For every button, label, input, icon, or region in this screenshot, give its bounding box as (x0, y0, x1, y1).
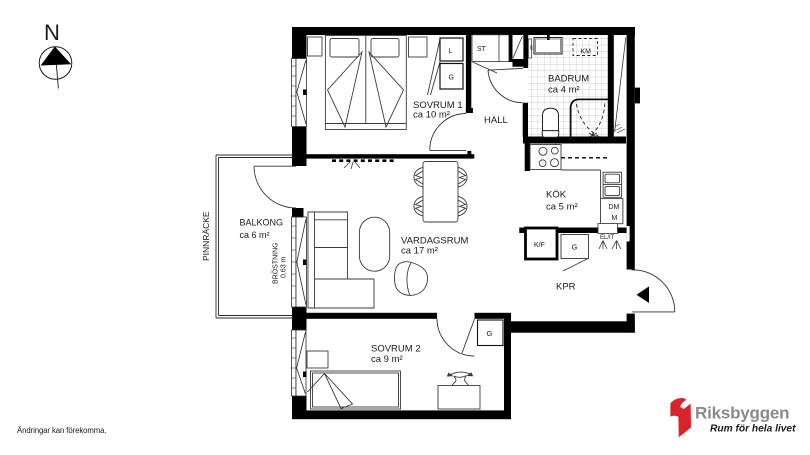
svg-text:Ändringar kan förekomma.: Ändringar kan förekomma. (17, 426, 106, 435)
svg-text:BRÖSTNING: BRÖSTNING (272, 242, 280, 284)
svg-text:N: N (44, 20, 60, 45)
svg-text:EL/IT: EL/IT (600, 235, 615, 241)
svg-text:G: G (449, 75, 454, 82)
svg-text:ca 6 m²: ca 6 m² (240, 230, 270, 240)
svg-text:IL: IL (530, 46, 534, 52)
svg-text:SOVRUM 2: SOVRUM 2 (371, 344, 421, 355)
svg-text:KÖK: KÖK (546, 190, 567, 201)
svg-text:0,63 m: 0,63 m (281, 256, 288, 278)
svg-text:K/F: K/F (534, 242, 545, 249)
svg-text:ca 4 m²: ca 4 m² (548, 85, 580, 96)
svg-text:M: M (612, 215, 618, 222)
svg-text:HALL: HALL (484, 115, 508, 126)
svg-text:Riksbyggen: Riksbyggen (695, 404, 789, 423)
svg-text:ca 5 m²: ca 5 m² (546, 202, 578, 213)
svg-text:KPR: KPR (556, 282, 576, 293)
svg-text:BADRUM: BADRUM (548, 74, 589, 85)
svg-text:PINNRÄCKE: PINNRÄCKE (201, 211, 211, 261)
svg-text:G: G (572, 243, 578, 252)
svg-text:Rum för hela livet: Rum för hela livet (710, 424, 796, 435)
svg-text:DM: DM (609, 204, 620, 211)
svg-text:KM: KM (581, 49, 592, 56)
svg-text:ST: ST (477, 46, 487, 53)
svg-text:ca 9 m²: ca 9 m² (371, 354, 403, 365)
svg-text:ca 10 m²: ca 10 m² (413, 110, 450, 121)
svg-text:ca 17 m²: ca 17 m² (401, 246, 438, 257)
svg-text:BALKONG: BALKONG (240, 218, 284, 228)
svg-text:G: G (487, 329, 493, 338)
svg-text:L: L (449, 48, 453, 55)
